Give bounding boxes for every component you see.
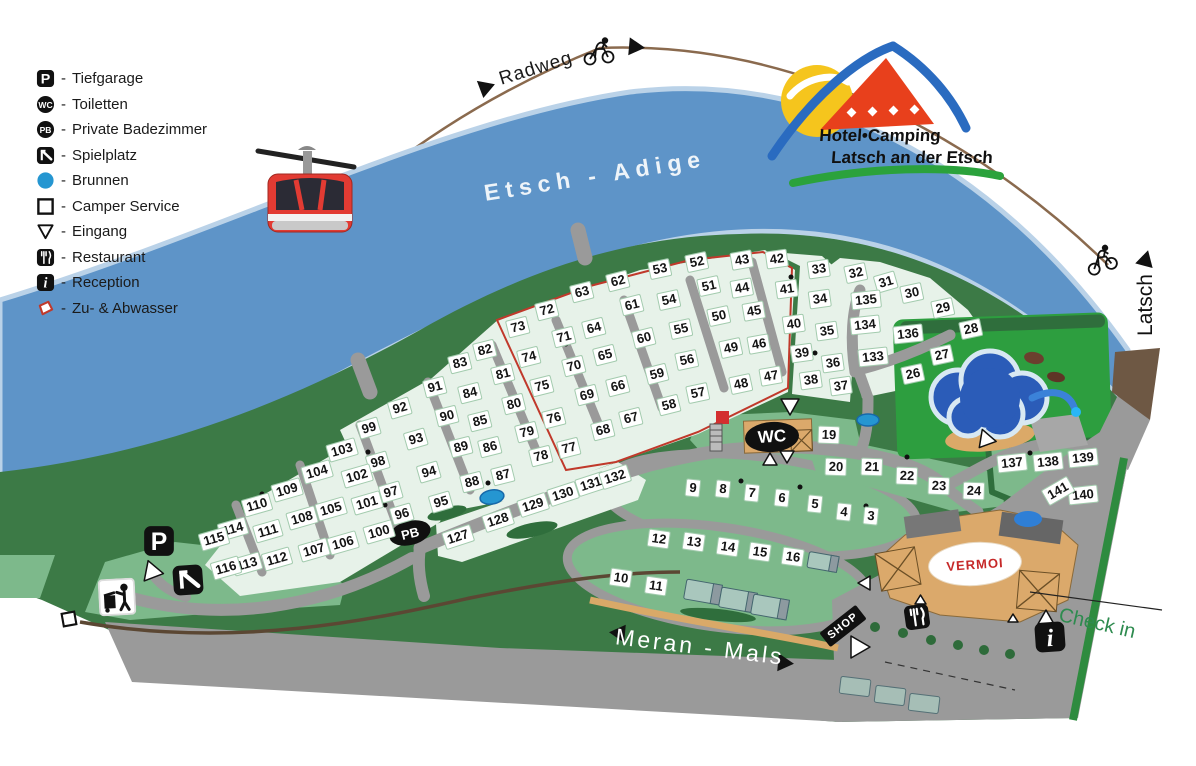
- logo-line2: Latsch an der Etsch: [831, 148, 994, 168]
- legend-item-label: Eingang: [72, 223, 127, 240]
- tiefgarage-icon: P: [36, 69, 55, 88]
- brunnen-icon: [36, 171, 55, 190]
- logo-line1: Hotel•Camping: [819, 126, 942, 146]
- map-tiefgarage-icon: P: [143, 525, 176, 558]
- pitch-6: 6: [773, 488, 790, 507]
- legend-item-tiefgarage: P-Tiefgarage: [36, 66, 207, 92]
- pitch-16: 16: [781, 547, 806, 568]
- private-badezimmer-icon: PB: [36, 120, 55, 139]
- pitch-21: 21: [860, 458, 883, 477]
- pitch-33: 33: [807, 259, 832, 280]
- spielplatz-icon: [36, 146, 55, 165]
- pitch-24: 24: [962, 482, 985, 501]
- pitch-5: 5: [806, 494, 823, 513]
- legend-item-label: Toiletten: [72, 96, 128, 113]
- legend-separator: -: [61, 249, 66, 266]
- pitch-36: 36: [821, 353, 846, 374]
- pitch-137: 137: [996, 452, 1027, 473]
- svg-text:WC: WC: [38, 100, 52, 110]
- map-camper-service-icon: [59, 609, 79, 629]
- pitch-38: 38: [799, 370, 824, 391]
- map-waste-icon: [98, 578, 137, 617]
- legend-item-camper-service: -Camper Service: [36, 194, 207, 220]
- map-spielplatz-icon: [170, 562, 205, 597]
- pitch-23: 23: [927, 477, 950, 496]
- pitch-138: 138: [1032, 451, 1063, 472]
- pitch-15: 15: [748, 542, 773, 563]
- svg-text:P: P: [151, 529, 168, 556]
- svg-text:PB: PB: [40, 125, 52, 135]
- legend-item-toiletten: WC-Toiletten: [36, 92, 207, 118]
- pitch-3: 3: [862, 506, 879, 525]
- legend: P-TiefgarageWC-ToilettenPB-Private Badez…: [36, 66, 207, 321]
- pitch-134: 134: [849, 314, 880, 335]
- reception-icon: i: [36, 273, 55, 292]
- pitch-47: 47: [758, 365, 783, 387]
- legend-separator: -: [61, 198, 66, 215]
- svg-text:P: P: [41, 72, 51, 88]
- legend-item-label: Restaurant: [72, 249, 145, 266]
- pitch-44: 44: [729, 277, 754, 299]
- pitch-42: 42: [765, 249, 790, 270]
- pitch-133: 133: [857, 346, 888, 367]
- restaurant-icon: [36, 248, 55, 267]
- legend-item-label: Reception: [72, 274, 140, 291]
- pitch-40: 40: [782, 314, 807, 335]
- map-restaurant-icon: [902, 602, 932, 632]
- legend-item-brunnen: -Brunnen: [36, 168, 207, 194]
- pitch-35: 35: [815, 321, 840, 342]
- legend-separator: -: [61, 300, 66, 317]
- pitch-20: 20: [824, 458, 847, 477]
- town-label: Latsch: [1134, 274, 1158, 336]
- pitch-135: 135: [850, 289, 881, 310]
- pitch-34: 34: [808, 289, 833, 310]
- cable-car-icon: [258, 146, 354, 232]
- pitch-14: 14: [716, 537, 741, 558]
- legend-item-restaurant: -Restaurant: [36, 245, 207, 271]
- toiletten-icon: WC: [36, 95, 55, 114]
- legend-separator: -: [61, 70, 66, 87]
- campground-map: P-TiefgarageWC-ToilettenPB-Private Badez…: [0, 0, 1196, 766]
- pitch-11: 11: [644, 576, 668, 597]
- pitch-136: 136: [892, 323, 923, 344]
- eingang-icon: [36, 222, 55, 241]
- camper-service-icon: [36, 197, 55, 216]
- pitch-7: 7: [743, 483, 760, 502]
- legend-separator: -: [61, 147, 66, 164]
- legend-item-zu-abwasser: -Zu- & Abwasser: [36, 296, 207, 322]
- legend-item-label: Tiefgarage: [72, 70, 143, 87]
- pitch-22: 22: [895, 467, 918, 486]
- svg-text:i: i: [44, 276, 48, 292]
- pitch-45: 45: [741, 300, 766, 322]
- legend-item-label: Zu- & Abwasser: [72, 300, 178, 317]
- map-reception-icon: i: [1032, 619, 1067, 654]
- legend-separator: -: [61, 223, 66, 240]
- pitch-10: 10: [609, 568, 634, 589]
- pitch-8: 8: [714, 479, 731, 498]
- legend-item-label: Spielplatz: [72, 147, 137, 164]
- legend-item-label: Brunnen: [72, 172, 129, 189]
- pitch-46: 46: [746, 333, 771, 355]
- legend-item-eingang: -Eingang: [36, 219, 207, 245]
- pitch-9: 9: [684, 478, 701, 497]
- pitch-139: 139: [1067, 447, 1098, 468]
- pitch-13: 13: [682, 532, 707, 553]
- legend-separator: -: [61, 96, 66, 113]
- pitch-41: 41: [775, 279, 800, 300]
- legend-separator: -: [61, 172, 66, 189]
- pitch-37: 37: [829, 376, 854, 397]
- pitch-19: 19: [817, 426, 840, 445]
- supply-point: [716, 411, 729, 424]
- pitch-43: 43: [729, 249, 754, 271]
- pitch-12: 12: [647, 529, 672, 550]
- legend-separator: -: [61, 274, 66, 291]
- pitch-4: 4: [835, 502, 852, 521]
- legend-separator: -: [61, 121, 66, 138]
- legend-item-reception: i-Reception: [36, 270, 207, 296]
- legend-item-private-badezimmer: PB-Private Badezimmer: [36, 117, 207, 143]
- legend-item-label: Camper Service: [72, 198, 180, 215]
- pitch-39: 39: [790, 343, 815, 364]
- legend-item-label: Private Badezimmer: [72, 121, 207, 138]
- legend-item-spielplatz: -Spielplatz: [36, 143, 207, 169]
- zu-abwasser-icon: [36, 299, 55, 318]
